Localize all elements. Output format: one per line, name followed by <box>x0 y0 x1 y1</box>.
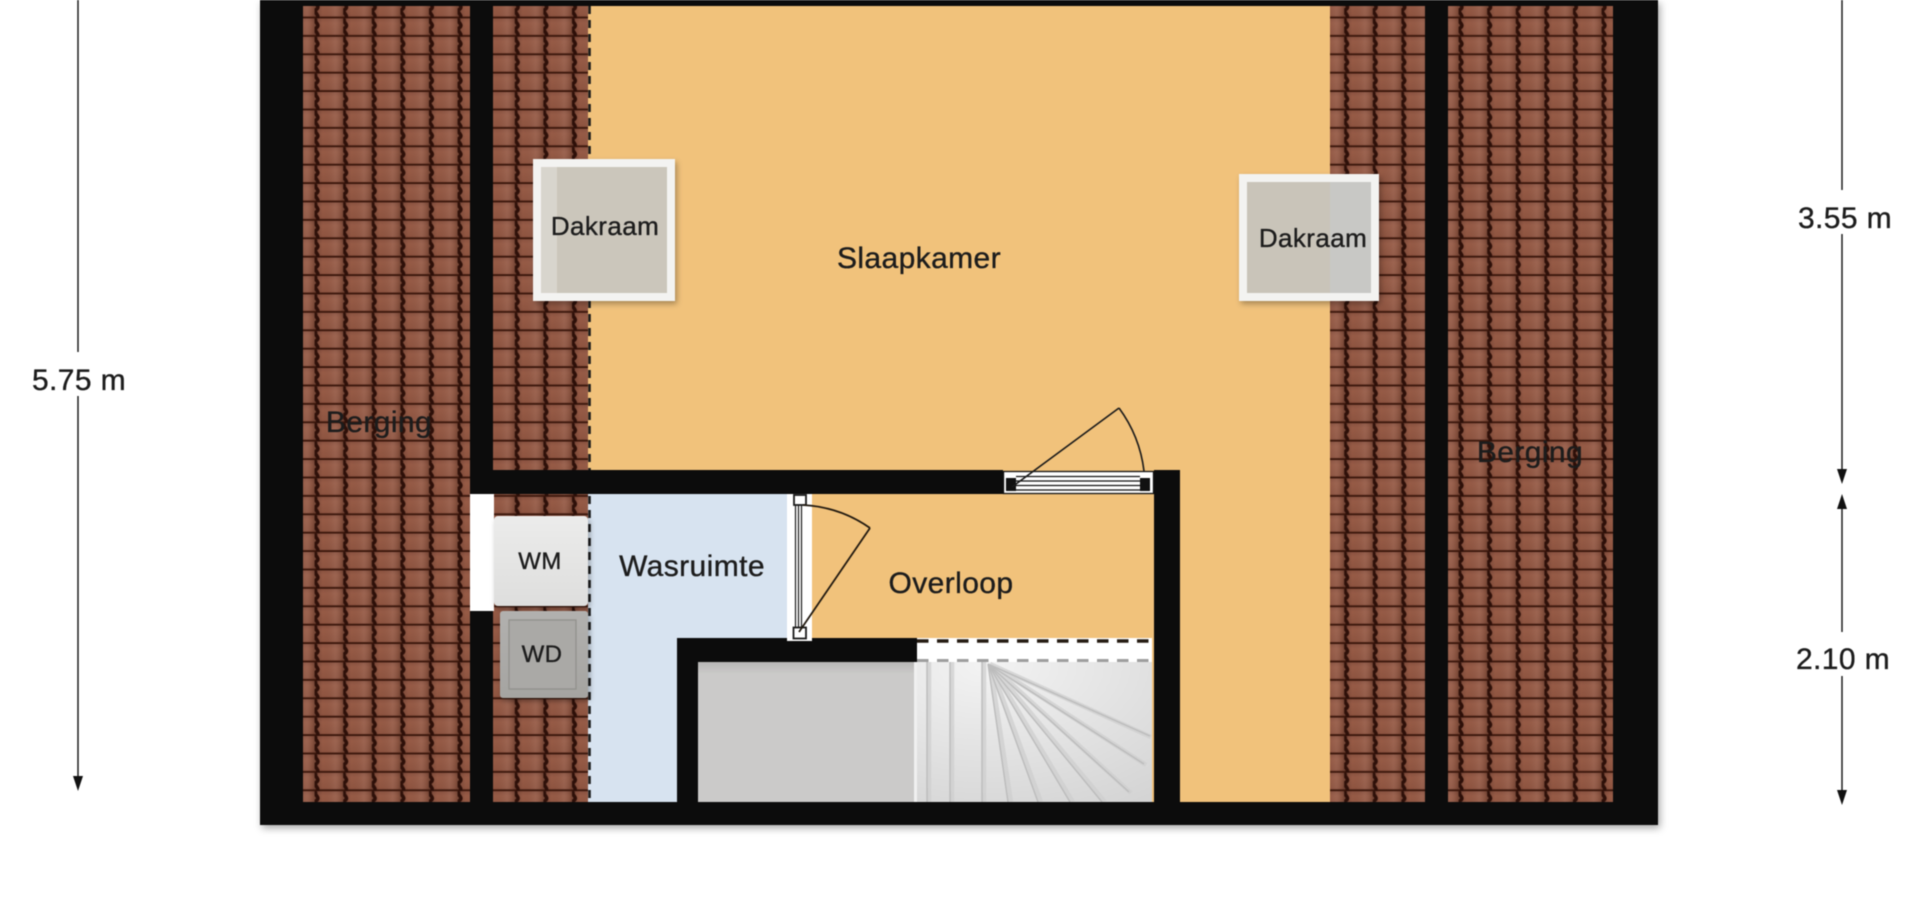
svg-text:Berging: Berging <box>1477 436 1583 469</box>
svg-text:Dakraam: Dakraam <box>551 211 659 241</box>
svg-text:5.75 m: 5.75 m <box>32 364 126 397</box>
svg-text:2.10 m: 2.10 m <box>1796 643 1890 676</box>
svg-text:WD: WD <box>522 641 563 668</box>
svg-text:Overloop: Overloop <box>889 567 1014 600</box>
svg-text:Wasruimte: Wasruimte <box>619 550 765 583</box>
svg-text:WM: WM <box>518 548 561 575</box>
svg-text:Berging: Berging <box>326 406 432 439</box>
svg-text:3.55 m: 3.55 m <box>1798 202 1892 235</box>
svg-text:Slaapkamer: Slaapkamer <box>837 242 1001 275</box>
svg-text:Dakraam: Dakraam <box>1259 223 1367 253</box>
